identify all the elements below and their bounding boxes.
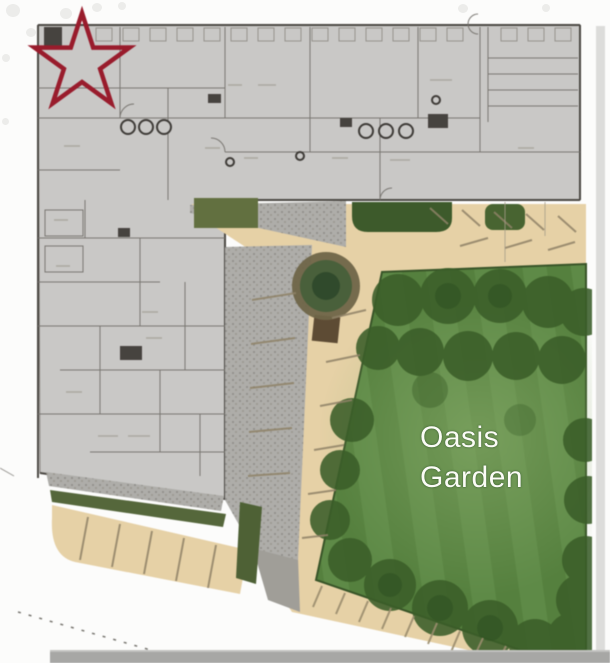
right-edge-strip [596, 26, 605, 663]
garden-label-line1: Oasis [420, 418, 600, 458]
hedge [194, 198, 258, 228]
property-line-dashed [18, 612, 168, 655]
bottom-road-bar [50, 650, 610, 652]
garden-label: Oasis Garden [420, 418, 600, 498]
site-plan-drawing [0, 0, 610, 663]
hedge [352, 202, 452, 232]
garden-label-line2: Garden [420, 458, 600, 498]
site-plan-screenshot: Oasis Garden [0, 0, 610, 663]
